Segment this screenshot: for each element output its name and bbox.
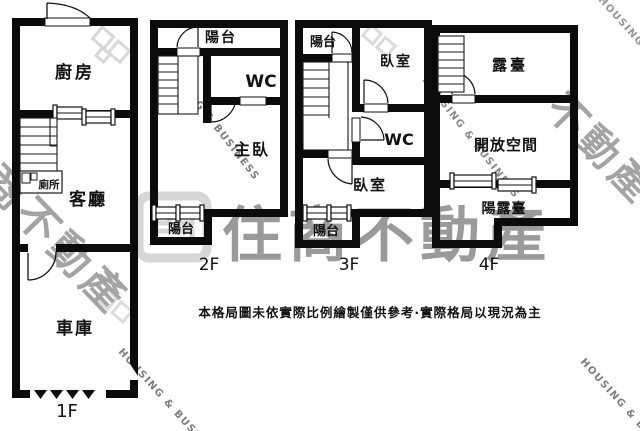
- floor-3f: 陽台 臥室 WC 臥室 陽台 3F: [295, 20, 432, 275]
- entry-door: [45, 3, 91, 26]
- room-label-terrace: 露臺: [492, 56, 528, 74]
- floor-2f: 陽台 WC 主臥 陽台 2F: [150, 20, 288, 275]
- brand-cn-diagonal-watermark: 不動產: [537, 85, 640, 214]
- floor-plan-svg: 住商不動產 HOUSING & BUSINESS HOUSING & BUSIN…: [0, 0, 640, 431]
- floor-label-4f: 4F: [479, 255, 500, 275]
- window-symbol: [450, 173, 536, 193]
- door-arc: [28, 252, 56, 280]
- floor-label-3f: 3F: [339, 255, 360, 275]
- room-label-wc-2f: WC: [245, 72, 276, 92]
- brand-en-watermark: HOUSING & BUSINESS: [596, 0, 640, 114]
- room-label-wc-3f: WC: [384, 130, 413, 149]
- stairs-3f: [303, 62, 348, 150]
- floor-plan-page: 住商不動產 HOUSING & BUSINESS HOUSING & BUSIN…: [0, 0, 640, 431]
- room-label-garage: 車庫: [56, 318, 94, 339]
- door-arc: [328, 150, 352, 184]
- brand-tile-watermark: [363, 26, 395, 56]
- room-label-bedroom-top: 臥室: [380, 53, 412, 70]
- room-label-balcony-bottom-3f: 陽台: [313, 223, 339, 239]
- toilet-room: 廁所: [20, 171, 62, 193]
- door-arc: [177, 27, 200, 56]
- floor-4f: 露臺 開放空間 陽露臺 4F: [432, 25, 578, 275]
- floor-label-2f: 2F: [199, 255, 220, 275]
- floor-label-1f: 1F: [56, 401, 78, 422]
- door-arc: [352, 117, 384, 142]
- room-label-balcony-top-2f: 陽台: [205, 29, 237, 46]
- stairs-2f: [158, 56, 198, 114]
- room-label-open-space: 開放空間: [474, 136, 538, 154]
- floor-1f: 廁所 廚房 客廳 車庫 1F: [12, 3, 138, 422]
- window-symbol: [152, 205, 204, 221]
- window-symbol: [53, 105, 115, 125]
- brand-en-watermark: HOUSING & BUSINESS: [578, 357, 640, 431]
- room-label-toilet: 廁所: [39, 178, 60, 191]
- room-label-living: 客廳: [68, 189, 107, 210]
- door-arc: [364, 80, 388, 112]
- room-label-balcony-terrace: 陽露臺: [482, 200, 527, 217]
- brand-tile-watermark: [92, 27, 129, 62]
- room-label-balcony-bottom-2f: 陽台: [168, 221, 194, 237]
- window-symbol: [303, 205, 351, 221]
- brand-tile-watermark: [97, 289, 132, 322]
- room-label-kitchen: 廚房: [55, 62, 95, 83]
- room-label-master: 主臥: [234, 140, 270, 159]
- room-label-balcony-top-3f: 陽台: [310, 34, 336, 50]
- room-label-bedroom: 臥室: [353, 176, 387, 194]
- stairs-4f: [438, 36, 464, 92]
- disclaimer-text: 本格局圖未依實際比例繪製僅供參考·實際格局以現況為主: [198, 305, 541, 320]
